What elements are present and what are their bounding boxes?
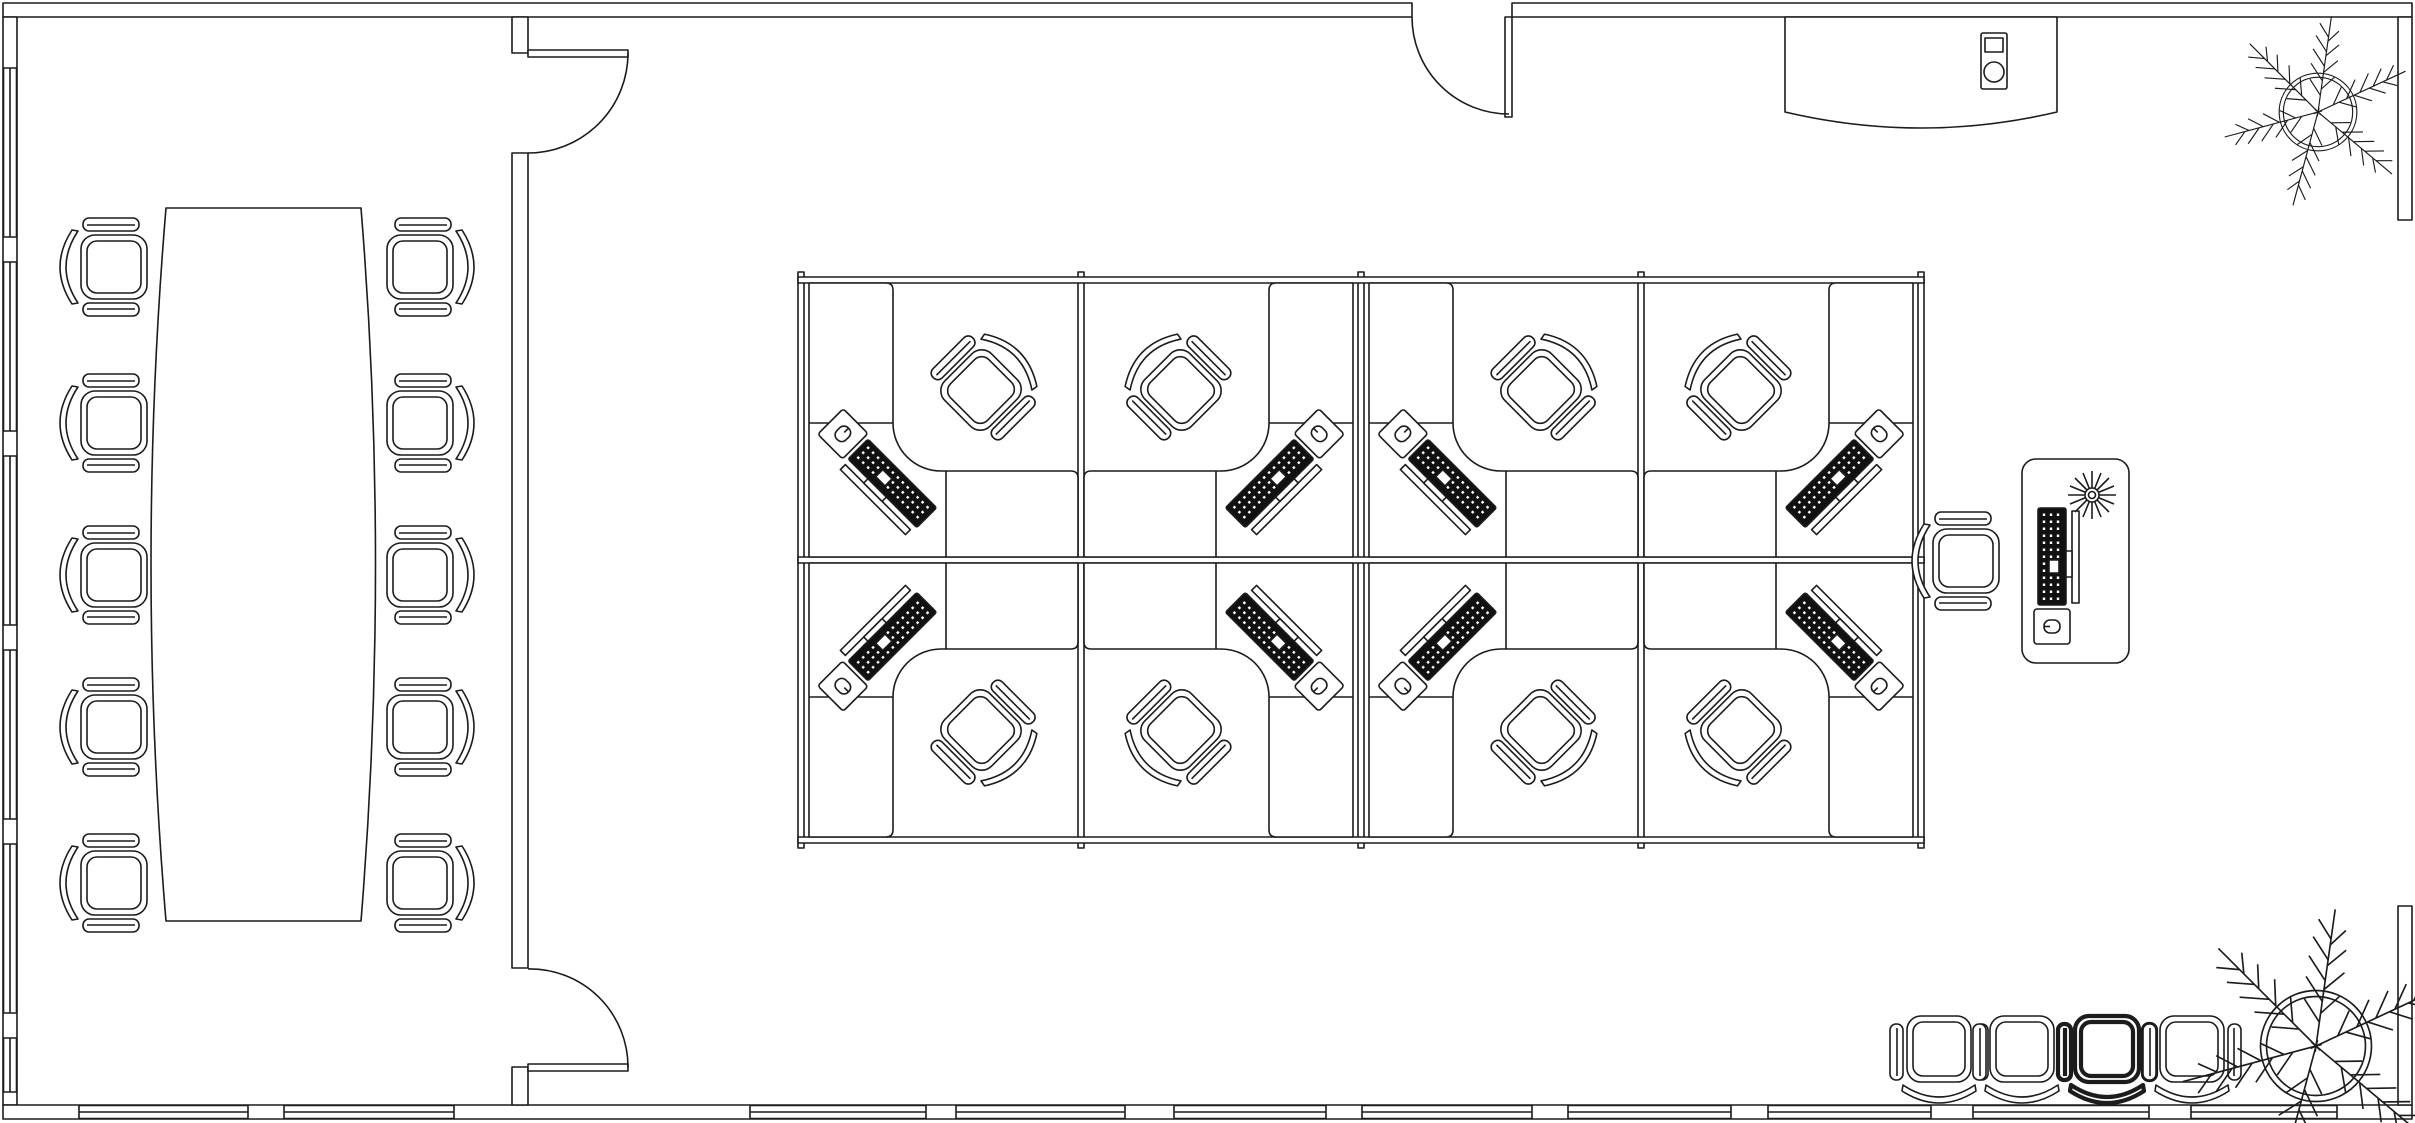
- workstation-chair[interactable]: [1108, 317, 1239, 448]
- workstation-8[interactable]: [1644, 563, 1913, 837]
- workstation-chair[interactable]: [1108, 672, 1239, 803]
- conference-door-top[interactable]: [528, 50, 628, 153]
- conference-room: [60, 17, 628, 1105]
- wall-right-lower: [2398, 906, 2412, 1105]
- workstation-chair[interactable]: [923, 672, 1054, 803]
- wall-top-left-segment: [3, 3, 1412, 17]
- corner-plant-1[interactable]: [2221, 14, 2410, 208]
- workstation-5[interactable]: [809, 563, 1078, 837]
- manager-desk-area: [1912, 459, 2129, 663]
- workstation-chair[interactable]: [923, 317, 1054, 448]
- conference-chair-5[interactable]: [60, 834, 147, 932]
- guest-chair-selected[interactable]: [2058, 1016, 2156, 1103]
- partition-horizontal-2: [798, 557, 1924, 563]
- conference-chair-7[interactable]: [387, 374, 474, 472]
- desk-plant[interactable]: [2068, 471, 2116, 519]
- workstation-4[interactable]: [1644, 283, 1913, 557]
- floor-plan-canvas[interactable]: [0, 0, 2415, 1123]
- conference-chair-9[interactable]: [387, 678, 474, 776]
- entry-door[interactable]: [1412, 17, 1512, 117]
- conference-wall-bottom-stub: [512, 1067, 528, 1105]
- partition-horizontal-3: [798, 837, 1924, 843]
- workstation-2[interactable]: [1084, 283, 1353, 557]
- conference-table[interactable]: [151, 208, 376, 921]
- conference-chair-3[interactable]: [60, 526, 147, 624]
- conference-chair-6[interactable]: [387, 218, 474, 316]
- workstation-7[interactable]: [1369, 563, 1638, 837]
- reception-counter[interactable]: [1785, 17, 2057, 128]
- partition-horizontal-1: [798, 277, 1924, 283]
- conference-chair-1[interactable]: [60, 218, 147, 316]
- workstation-chair[interactable]: [1668, 672, 1799, 803]
- door-leaf[interactable]: [528, 1064, 628, 1071]
- conference-door-bottom[interactable]: [528, 969, 628, 1071]
- waiting-area-chairs: [1890, 1016, 2241, 1103]
- workstation-chair[interactable]: [1668, 317, 1799, 448]
- conference-chair-2[interactable]: [60, 374, 147, 472]
- door-swing-arc: [528, 53, 628, 153]
- door-swing-arc: [528, 969, 628, 1067]
- workstation-cluster: [798, 272, 1924, 848]
- wall-right-upper: [2398, 17, 2412, 220]
- conference-chair-4[interactable]: [60, 678, 147, 776]
- door-leaf[interactable]: [528, 50, 628, 57]
- workstation-6[interactable]: [1084, 563, 1353, 837]
- reception-area: [1785, 17, 2057, 128]
- workstation-chair[interactable]: [1483, 672, 1614, 803]
- workstation-chair[interactable]: [1483, 317, 1614, 448]
- conference-wall-top-stub: [512, 17, 528, 53]
- door-swing-arc: [1412, 17, 1509, 114]
- workstation-3[interactable]: [1369, 283, 1638, 557]
- workstation-1[interactable]: [809, 283, 1078, 557]
- corner-plant-2[interactable]: [2178, 907, 2415, 1123]
- wall-top-right-segment: [1512, 3, 2412, 17]
- conference-chair-8[interactable]: [387, 526, 474, 624]
- manager-chair[interactable]: [1912, 512, 1999, 610]
- corner-plants: [2178, 14, 2415, 1123]
- conference-chair-10[interactable]: [387, 834, 474, 932]
- conference-wall-right: [512, 153, 528, 968]
- door-leaf[interactable]: [1505, 17, 1512, 117]
- floor-plan-page: [0, 0, 2415, 1123]
- reception-device[interactable]: [1981, 33, 2007, 89]
